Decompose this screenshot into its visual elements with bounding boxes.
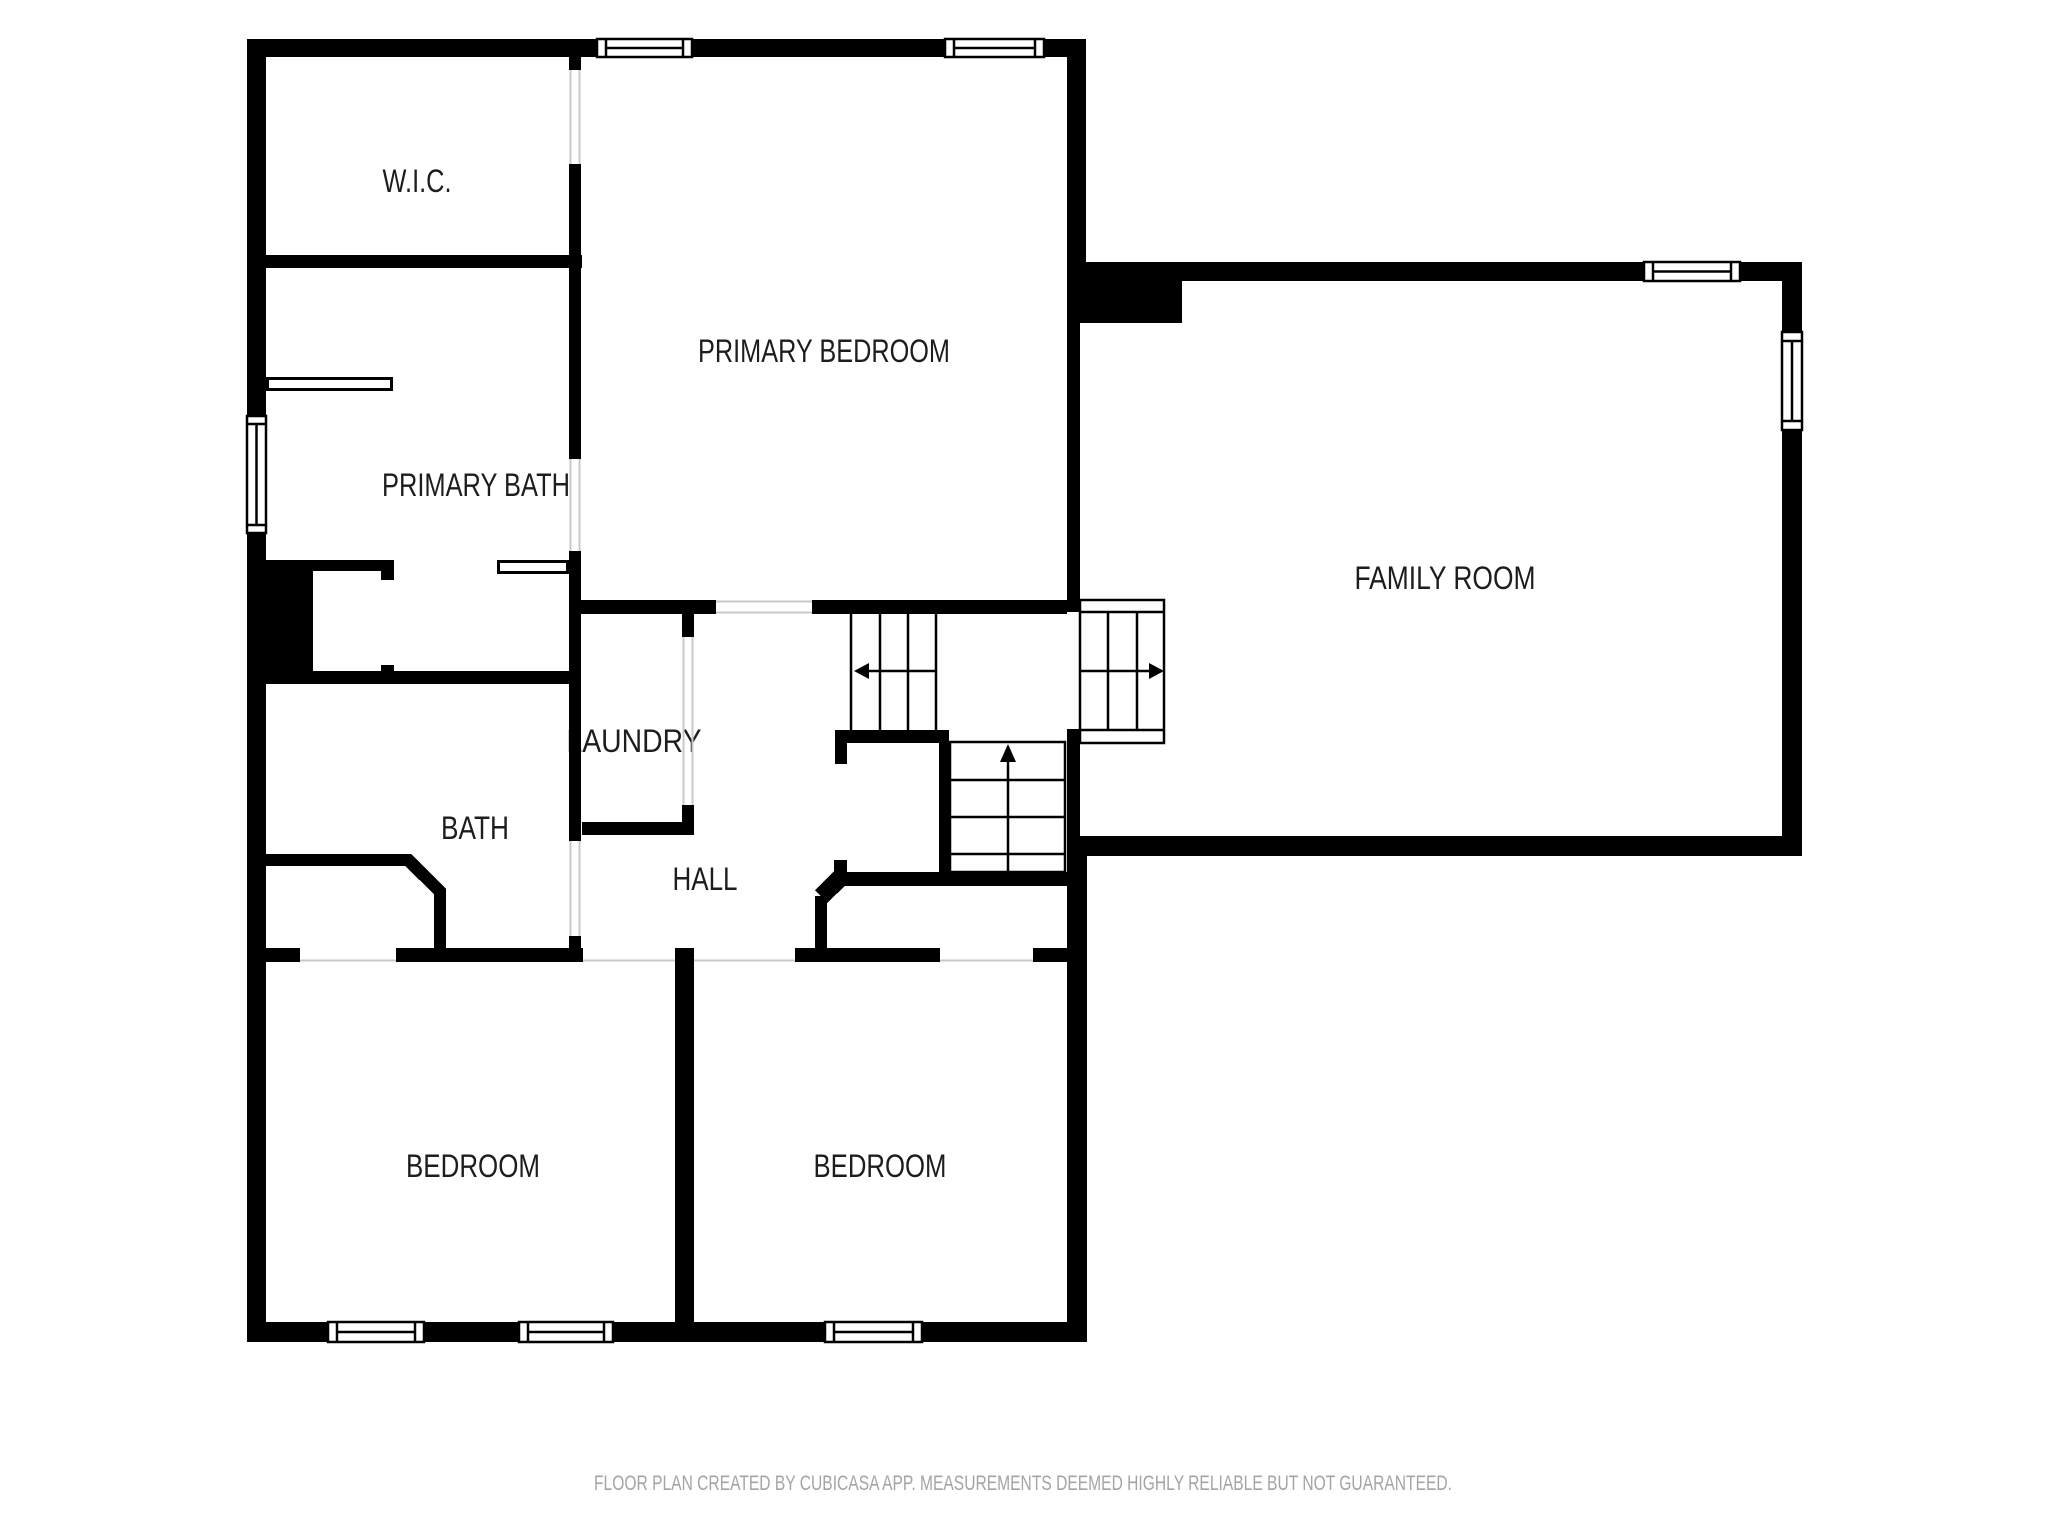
svg-text:HALL: HALL [673, 861, 738, 897]
svg-text:W.I.C.: W.I.C. [383, 163, 452, 199]
svg-text:BATH: BATH [441, 810, 509, 846]
svg-text:FAMILY ROOM: FAMILY ROOM [1355, 560, 1536, 596]
svg-text:BEDROOM: BEDROOM [406, 1148, 540, 1184]
svg-text:BEDROOM: BEDROOM [814, 1148, 947, 1184]
svg-text:PRIMARY BEDROOM: PRIMARY BEDROOM [698, 333, 950, 369]
svg-text:FLOOR PLAN CREATED BY CUBICASA: FLOOR PLAN CREATED BY CUBICASA APP. MEAS… [594, 1472, 1452, 1495]
svg-text:LAUNDRY: LAUNDRY [567, 723, 702, 759]
svg-text:PRIMARY BATH: PRIMARY BATH [382, 467, 570, 503]
